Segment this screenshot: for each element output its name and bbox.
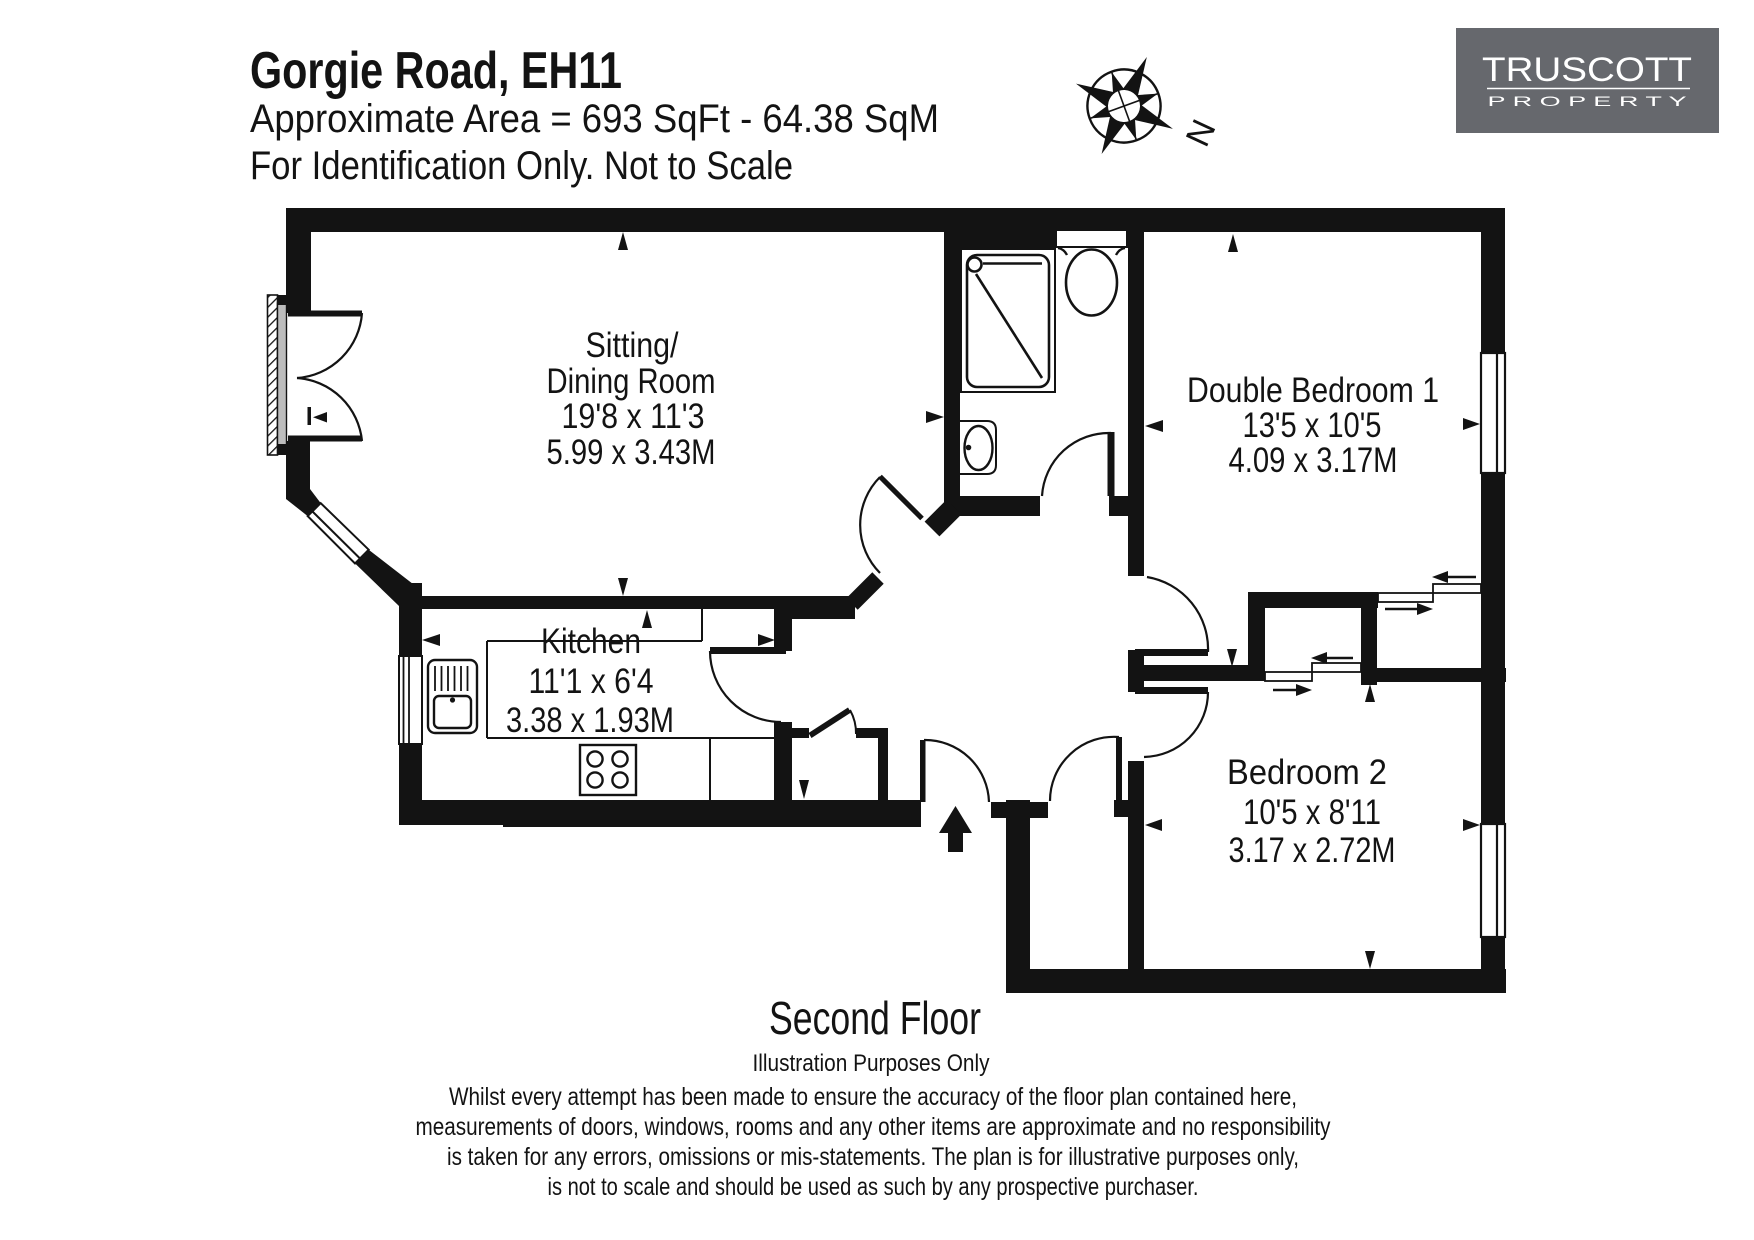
svg-text:Sitting/: Sitting/ (586, 326, 679, 365)
svg-text:Approximate Area = 693 SqFt -: Approximate Area = 693 SqFt - 64.38 SqM (250, 97, 939, 141)
svg-text:3.38 x 1.93M: 3.38 x 1.93M (506, 701, 674, 740)
svg-text:TRUSCOTT: TRUSCOTT (1482, 51, 1692, 89)
svg-text:10'5 x 8'11: 10'5 x 8'11 (1243, 793, 1381, 832)
svg-text:is not to scale and should be: is not to scale and should be used as su… (548, 1173, 1199, 1201)
svg-text:13'5 x 10'5: 13'5 x 10'5 (1243, 406, 1382, 445)
svg-text:For Identification Only. Not t: For Identification Only. Not to Scale (250, 144, 793, 188)
svg-text:Second Floor: Second Floor (769, 992, 981, 1044)
svg-text:Kitchen: Kitchen (541, 622, 641, 661)
svg-text:P R O P E R T Y: P R O P E R T Y (1488, 93, 1688, 109)
svg-text:measurements of doors, windows: measurements of doors, windows, rooms an… (416, 1113, 1331, 1141)
svg-text:11'1 x 6'4: 11'1 x 6'4 (529, 662, 654, 701)
svg-text:is taken for any errors, omiss: is taken for any errors, omissions or mi… (447, 1143, 1299, 1171)
svg-text:Gorgie Road, EH11: Gorgie Road, EH11 (250, 42, 622, 100)
svg-text:4.09 x 3.17M: 4.09 x 3.17M (1229, 441, 1398, 480)
svg-text:19'8 x 11'3: 19'8 x 11'3 (562, 397, 705, 436)
svg-text:Dining Room: Dining Room (547, 362, 716, 401)
svg-text:Double Bedroom 1: Double Bedroom 1 (1187, 371, 1439, 410)
svg-text:Bedroom 2: Bedroom 2 (1227, 753, 1387, 792)
svg-text:Whilst every attempt has been: Whilst every attempt has been made to en… (449, 1083, 1297, 1111)
svg-text:3.17 x 2.72M: 3.17 x 2.72M (1229, 831, 1396, 870)
svg-text:Illustration Purposes Only: Illustration Purposes Only (753, 1050, 990, 1077)
svg-text:5.99 x 3.43M: 5.99 x 3.43M (547, 433, 716, 472)
